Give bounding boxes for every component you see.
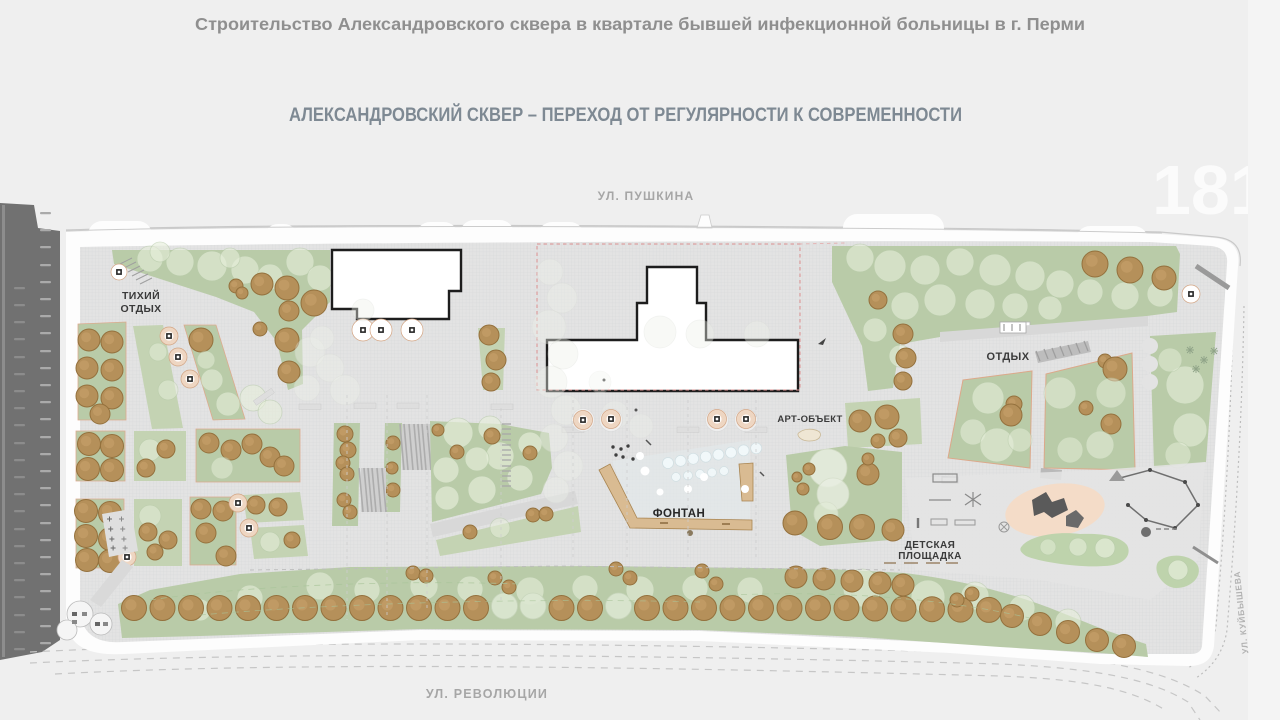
svg-text:УЛ. РЕВОЛЮЦИИ: УЛ. РЕВОЛЮЦИИ — [426, 687, 548, 701]
svg-text:УЛ. ПУШКИНА: УЛ. ПУШКИНА — [598, 189, 695, 203]
svg-text:ФОНТАН: ФОНТАН — [653, 508, 705, 520]
svg-text:ТИХИЙ: ТИХИЙ — [122, 289, 160, 302]
svg-text:ДЕТСКАЯ: ДЕТСКАЯ — [905, 540, 955, 551]
svg-text:ПЛОЩАДКА: ПЛОЩАДКА — [898, 551, 961, 562]
svg-text:АЛЕКСАНДРОВСКИЙ СКВЕР – ПЕРЕХО: АЛЕКСАНДРОВСКИЙ СКВЕР – ПЕРЕХОД ОТ РЕГУЛ… — [289, 104, 962, 126]
svg-text:Строительство Александровского: Строительство Александровского сквера в … — [195, 14, 1085, 34]
svg-text:АРТ-ОБЪЕКТ: АРТ-ОБЪЕКТ — [777, 414, 842, 425]
svg-text:ОТДЫХ: ОТДЫХ — [120, 303, 161, 315]
svg-text:ОТДЫХ: ОТДЫХ — [987, 351, 1030, 363]
